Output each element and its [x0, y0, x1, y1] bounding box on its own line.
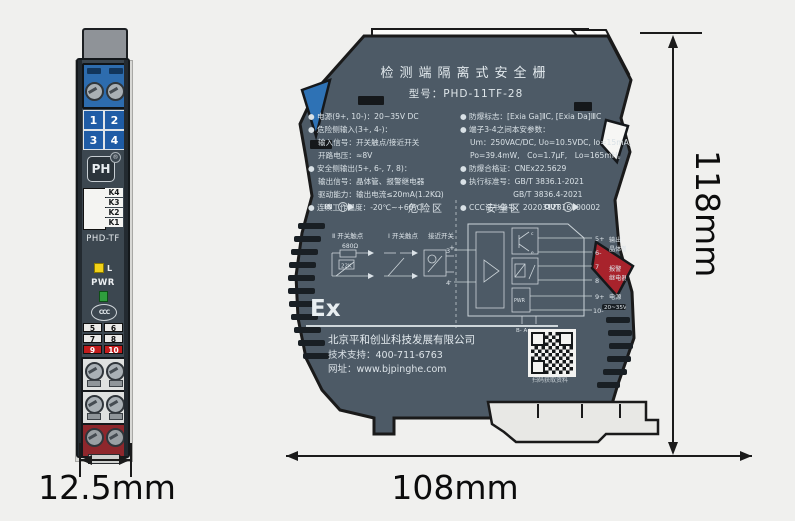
switch-i-label: Ⅰ 开关触点: [388, 231, 418, 240]
output3-caption: 电源: [609, 293, 621, 301]
terminal-number-grid: 1 2 3 4: [83, 110, 125, 150]
out-label: OUT: [544, 203, 561, 211]
output1-caption: 输出: [609, 236, 621, 244]
terminal-number: 4: [105, 131, 124, 149]
in-arrow-icon: [348, 203, 354, 211]
resistor-22k-label: 22K: [341, 264, 352, 270]
ccc-mark: CCC: [91, 304, 117, 321]
list-item: 开路电压：≈8V: [308, 149, 460, 162]
brand-logo: PH ®: [87, 156, 115, 182]
pwr-box-label: PWR: [514, 298, 526, 304]
dimension-value: 108mm: [370, 468, 540, 507]
terminal-screw: [106, 362, 125, 381]
list-item: 输出信号：晶体管、报警继电器: [308, 175, 460, 188]
arrowhead-icon: [740, 451, 752, 461]
list-item: Po=39.4mW, Co=1.7μF, Lo=165mH。: [460, 149, 632, 162]
out-arrow-icon: [573, 203, 579, 211]
wire-slot: [109, 413, 123, 420]
terminal-number: 2: [105, 111, 124, 129]
terminal-9: 9+: [595, 293, 605, 301]
signal-led: [94, 263, 104, 273]
ccc-mark-text: CCC: [99, 309, 109, 316]
terminal-number: 3: [84, 131, 103, 149]
terminal-3: 3: [446, 247, 450, 255]
terminal-screw: [106, 428, 125, 447]
arrowhead-icon: [668, 35, 678, 48]
list-item: ● 执行标准号：GB/T 3836.1-2021: [460, 175, 632, 188]
output2-caption: 报警: [609, 265, 621, 273]
wire-slot: [87, 380, 101, 387]
block-diagram: IN 危险区 安全区 OUT Ⅱ 开关触点 680Ω 22K Ⅰ 开关触点: [296, 198, 626, 334]
terminal-7: 7: [595, 263, 599, 271]
product-title: 检测端隔离式安全栅: [316, 62, 616, 81]
proximity-switch-label: 接近开关: [428, 231, 455, 240]
terminal-screw: [85, 395, 104, 414]
amplifier-icon: [484, 260, 499, 282]
proximity-sensor-icon: [428, 255, 436, 263]
arrowhead-icon: [412, 250, 418, 256]
output3-caption2: 20~35VDC: [604, 305, 626, 311]
out-icon: [564, 203, 573, 212]
list-item: Um：250VAC/DC, Uo=10.5VDC, Io=15mA,: [460, 136, 632, 149]
terminal-plate-7-8: 7 8: [83, 334, 123, 343]
product-dimension-diagram: 1 2 3 4 PH ® K4K3K2K1 PHD-TF L PWR CCC: [0, 0, 795, 521]
arrowhead-icon: [286, 451, 298, 461]
terminal-screw: [85, 82, 104, 101]
proximity-switch-box: [424, 250, 446, 276]
terminal-6: 6-: [595, 249, 602, 257]
resistor-680-label: 680Ω: [342, 243, 358, 250]
side-view: 检测端隔离式安全栅 型号：PHD-11TF-28 ● 电源(9+, 10-)：2…: [276, 28, 666, 460]
company-name: 北京平和创业科技发展有限公司: [328, 332, 475, 347]
output-terminal-block: [81, 357, 129, 392]
list-item: ● 防爆合格证：CNEx22.5629: [460, 162, 632, 175]
list-item: 输入信号：开关触点/接近开关: [308, 136, 460, 149]
support-phone: 技术支持：400-711-6763: [328, 347, 443, 361]
terminal-5: 5+: [595, 235, 605, 243]
transistor-box: [512, 228, 538, 254]
list-item: K4: [105, 188, 123, 197]
safe-zone-label: 安全区: [486, 202, 522, 215]
brand-logo-text: PH: [92, 162, 111, 176]
front-body: 1 2 3 4 PH ® K4K3K2K1 PHD-TF L PWR CCC: [76, 58, 130, 458]
wire-slot: [109, 380, 123, 387]
in-icon: [339, 203, 348, 212]
output-terminal-block: [81, 390, 129, 425]
list-item: ● 危险侧输入(3+, 4-)：: [308, 123, 460, 136]
arrowhead-icon: [119, 455, 130, 465]
list-item: ● 安全侧输出(5+, 6-, 7, 8)：: [308, 162, 460, 175]
dimension-tick: [640, 32, 702, 34]
website: 网址：www.bjpinghe.com: [328, 361, 447, 375]
signal-led-label: L: [107, 264, 112, 273]
dimension-value: 12.5mm: [22, 468, 192, 507]
terminal-screw: [106, 82, 125, 101]
terminal-plate-9-10: 9 10: [83, 345, 123, 354]
collector-label: c: [531, 232, 534, 237]
qr-caption: 扫码获取资料: [523, 375, 577, 384]
din-clip: [488, 402, 658, 442]
switch-ii-label: Ⅱ 开关触点: [332, 231, 364, 240]
qr-code: [528, 329, 576, 377]
terminal-10: 10-: [593, 307, 604, 315]
arrowhead-icon: [368, 250, 374, 256]
input-terminal-block: [82, 63, 128, 109]
relay-labels: K4K3K2K1: [105, 188, 123, 228]
list-item: K1: [105, 218, 123, 227]
output2-caption2: 继电器: [609, 274, 626, 282]
in-label: IN: [324, 203, 333, 211]
power-terminal-block: [81, 423, 129, 458]
arrowhead-icon: [412, 273, 418, 279]
terminal-plate-5-6: 5 6: [83, 323, 123, 332]
terminal-number: 8: [104, 334, 123, 343]
list-item: K2: [105, 208, 123, 217]
label-window: [83, 188, 106, 230]
divider: [306, 325, 558, 327]
model-label: PHD-TF: [78, 234, 128, 244]
arrowhead-icon: [668, 442, 678, 455]
output1-caption2: 晶体管: [609, 245, 626, 253]
resistor-680: [340, 250, 356, 257]
wire-slot: [109, 68, 123, 74]
pwr-label: PWR: [78, 278, 128, 288]
terminal-number: 5: [83, 323, 102, 332]
terminal-8: 8: [595, 277, 599, 285]
ex-mark: Ex: [310, 296, 341, 322]
wire-slot: [87, 68, 101, 74]
terminal-screw: [106, 395, 125, 414]
dimension-line: [286, 455, 752, 457]
hazard-zone-label: 危险区: [408, 202, 444, 215]
terminal-screw: [85, 362, 104, 381]
signal-led-row: L: [78, 263, 128, 273]
terminal-number: 1: [84, 111, 103, 129]
wire-slot: [87, 413, 101, 420]
list-item: ● 端子3-4之间本安参数：: [460, 123, 632, 136]
arrowhead-icon: [368, 273, 374, 279]
relay-contact-icon: [529, 265, 535, 279]
terminal-number: 9: [83, 345, 102, 354]
dimension-line: [672, 38, 674, 450]
list-item: ● 防爆标志：[Exia Ga]ⅡC, [Exia Da]ⅢC: [460, 110, 632, 123]
terminal-screw: [85, 428, 104, 447]
list-item: ● 电源(9+, 10-)：20~35V DC: [308, 110, 460, 123]
switch-blade: [388, 258, 404, 276]
product-model: 型号：PHD-11TF-28: [316, 86, 616, 101]
list-item: K3: [105, 198, 123, 207]
terminal-4: 4: [446, 279, 450, 287]
terminal-number: 7: [83, 334, 102, 343]
arrowhead-icon: [81, 455, 92, 465]
terminal-number: 6: [104, 323, 123, 332]
emitter-label: e: [531, 251, 534, 256]
power-led: [99, 291, 108, 302]
terminal-number: 10: [104, 345, 123, 354]
isolator-box: [476, 232, 504, 308]
front-view: 1 2 3 4 PH ® K4K3K2K1 PHD-TF L PWR CCC: [74, 26, 134, 468]
dimension-value: 118mm: [688, 150, 727, 277]
registered-mark: ®: [110, 152, 121, 163]
